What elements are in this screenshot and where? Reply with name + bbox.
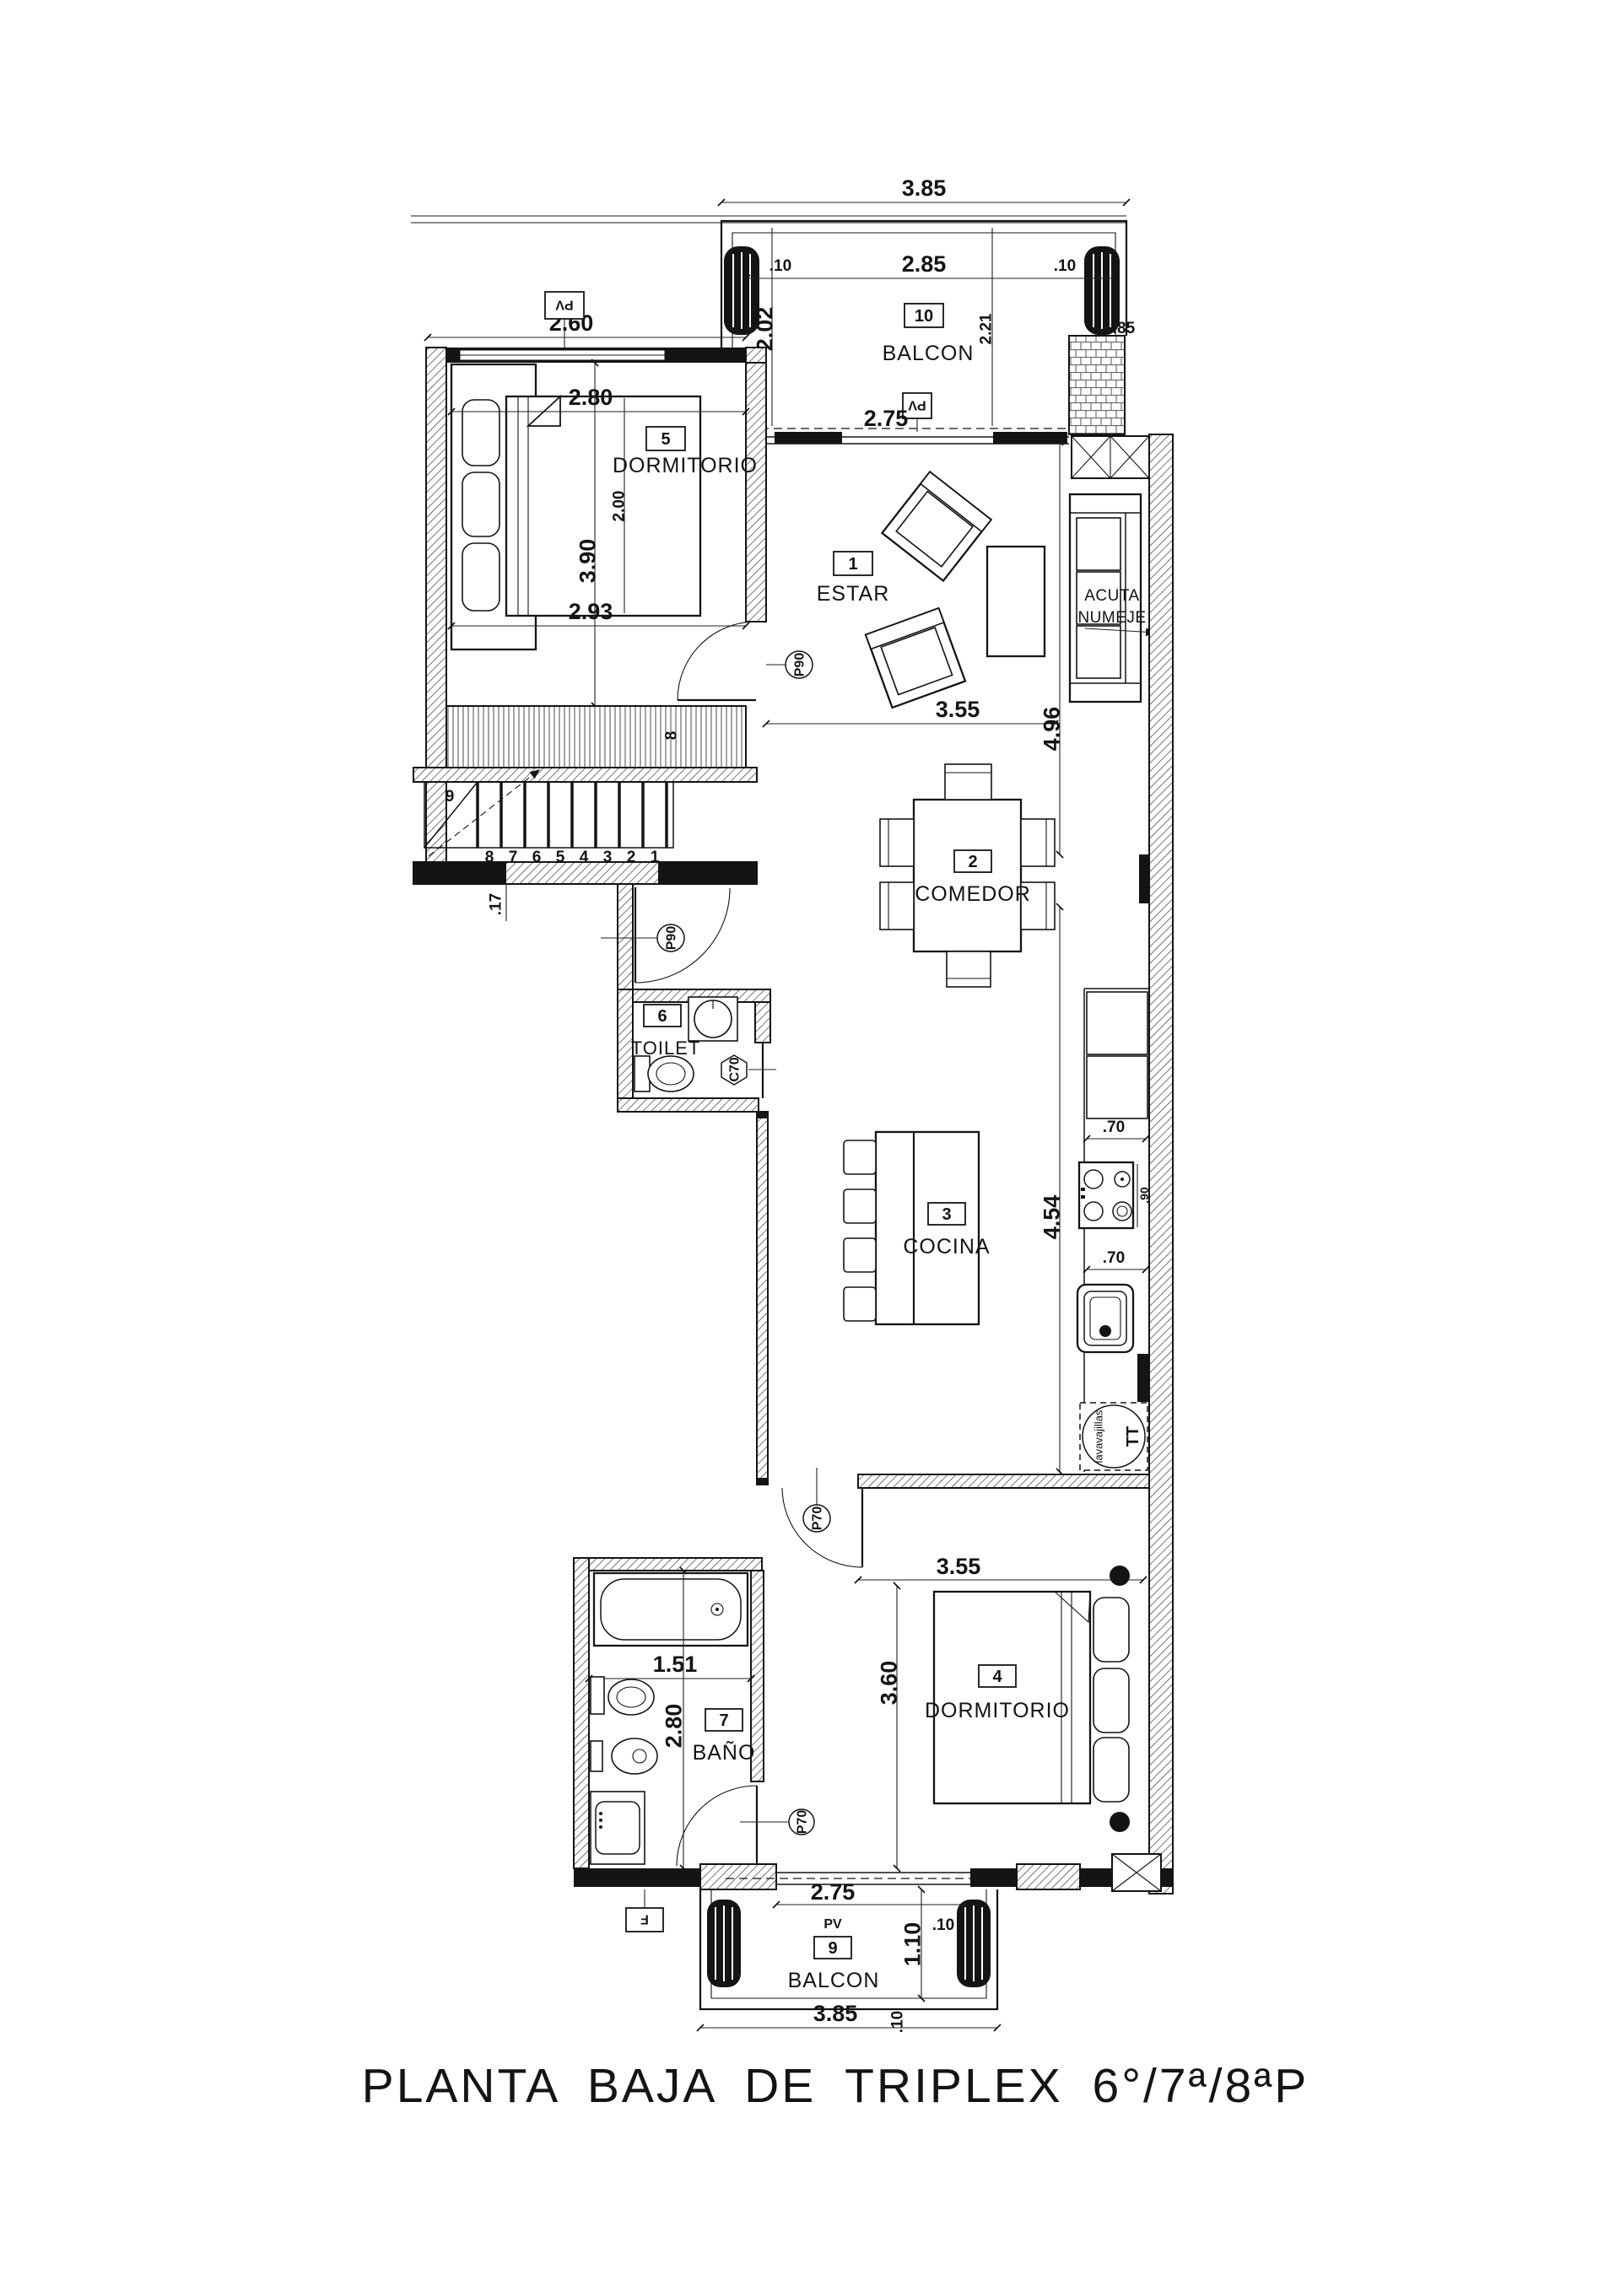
- washbasin-icon: [688, 997, 737, 1041]
- dim-balcon10-inner: 2.85: [902, 251, 947, 277]
- wall-nib: [1139, 854, 1149, 903]
- dim-balcon10-total: 3.85: [902, 175, 947, 201]
- room-number-dorm5: 5: [661, 430, 670, 449]
- dim-dorm5-bed: 2.80: [569, 385, 613, 410]
- dim-estar-width: 3.55: [936, 697, 980, 722]
- door-label-c70: C70: [728, 1057, 742, 1081]
- dim-stair-riser: .17: [488, 893, 505, 915]
- dim-pillar: .85: [1113, 320, 1136, 337]
- room-name-balcon9: BALCON: [788, 1969, 880, 1992]
- wall-right: [1149, 434, 1173, 1894]
- room-number-balcon9: 9: [828, 1939, 837, 1958]
- cooktop-icon: [1079, 1162, 1133, 1228]
- dim-dorm5-bottom: 2.93: [569, 599, 613, 624]
- wall-kitchen-thin: [757, 1112, 768, 1485]
- dim-dorm4-width: 3.55: [937, 1554, 981, 1579]
- room-name-bano: BAÑO: [693, 1740, 756, 1765]
- dining-table: [914, 800, 1021, 951]
- cabinet-1: [1087, 992, 1147, 1054]
- door-label-p90-dorm5: P90: [793, 653, 807, 677]
- dishwasher-label: lavavajillas: [1093, 1409, 1105, 1463]
- dim-counter-bottom: .70: [1103, 1249, 1125, 1267]
- dim-estar-depth: 4.96: [1039, 707, 1064, 752]
- kitchen-island: [876, 1132, 979, 1324]
- floor-plan-drawing: 3.85 .10 2.85 .10 2.02 2.21 10 BALCON .8…: [0, 0, 1620, 2292]
- room-number-dorm4: 4: [992, 1668, 1002, 1686]
- dim-bano-width: 1.51: [653, 1652, 698, 1677]
- wardrobe-8: [446, 706, 746, 768]
- dim-balcon9-door: 2.75: [811, 1879, 856, 1905]
- window-label-pv-dorm5: PV: [555, 297, 574, 311]
- dishwasher-icon: lavavajillas TT: [1080, 1403, 1147, 1470]
- room-number-estar: 1: [848, 555, 857, 574]
- brick-pillar: [1069, 336, 1125, 434]
- dim-balcon9-parapet: .10: [932, 1916, 954, 1934]
- dim-counter-top: .70: [1103, 1118, 1125, 1136]
- dim-parapet-left: .10: [769, 257, 791, 275]
- annotation-acota-2: NUMEJE: [1077, 609, 1146, 627]
- paper-background: [0, 0, 1620, 2292]
- room-number-comedor: 2: [968, 853, 977, 871]
- dim-balcon9-depth: 1.10: [899, 1922, 925, 1967]
- dim-balcon9-offset: .10: [889, 2011, 907, 2033]
- dim-dorm5-bed-len: 2.00: [611, 491, 629, 522]
- wall-left: [426, 348, 446, 884]
- dim-bano-depth: 2.80: [661, 1704, 686, 1749]
- door-label-p70-bano: P70: [796, 1810, 810, 1835]
- window-label-f: F: [640, 1911, 649, 1926]
- dishwasher-code: TT: [1124, 1426, 1142, 1447]
- planter-bottom-right-icon: [957, 1900, 991, 1987]
- basin-bano-icon: [591, 1792, 645, 1864]
- dim-balcon10-door: 2.75: [864, 406, 909, 431]
- drawing-title: PLANTA BAJA DE TRIPLEX 6°/7ª/8ªP: [362, 2059, 1309, 2113]
- cabinet-2: [1087, 1056, 1147, 1118]
- dim-parapet-right: .10: [1054, 257, 1076, 275]
- room-name-balcon10: BALCON: [883, 342, 975, 365]
- door-label-pv-balcon10: PV: [908, 397, 926, 412]
- stair-step-9: 9: [445, 788, 455, 806]
- room-number-bano: 7: [719, 1711, 728, 1730]
- dim-balcon10-depth-mid: 2.21: [978, 313, 996, 344]
- room-number-toilet: 6: [657, 1007, 667, 1026]
- dim-balcon10-depth-left: 2.02: [752, 307, 777, 352]
- shaft-xbox-bottom-icon: [1112, 1854, 1161, 1891]
- dim-cocina-depth: 4.54: [1039, 1195, 1064, 1240]
- room-name-dorm5: DORMITORIO: [613, 454, 758, 477]
- shaft-xbox-icon: [1072, 436, 1149, 478]
- door-label-pv-balcon9: PV: [823, 1917, 842, 1932]
- wc-bano-icon: [591, 1677, 654, 1715]
- door-label-p90-hall: P90: [665, 926, 679, 951]
- room-number-balcon10: 10: [915, 307, 933, 326]
- room-name-cocina: COCINA: [903, 1235, 990, 1258]
- bidet-icon: [591, 1738, 657, 1774]
- wc-icon: [634, 1056, 694, 1091]
- room-name-comedor: COMEDOR: [915, 882, 1031, 906]
- coffee-table: [987, 547, 1045, 656]
- room-name-estar: ESTAR: [817, 582, 890, 606]
- planter-bottom-left-icon: [707, 1900, 741, 1987]
- dim-dorm5-depth: 3.90: [575, 539, 600, 584]
- annotation-acota-1: ACUTA: [1084, 587, 1139, 605]
- sink-icon: [1077, 1285, 1133, 1352]
- dim-balcon9-total: 3.85: [813, 2001, 858, 2026]
- dim-dorm4-depth: 3.60: [876, 1661, 901, 1706]
- bathtub-icon: [594, 1573, 748, 1646]
- room-number-placard: 8: [663, 731, 681, 741]
- room-name-dorm4: DORMITORIO: [925, 1699, 1070, 1722]
- floor-plan-page: 3.85 .10 2.85 .10 2.02 2.21 10 BALCON .8…: [0, 0, 1620, 2292]
- door-label-p70-dorm4: P70: [811, 1506, 825, 1531]
- wall-divider: [746, 363, 766, 622]
- room-number-cocina: 3: [942, 1205, 951, 1224]
